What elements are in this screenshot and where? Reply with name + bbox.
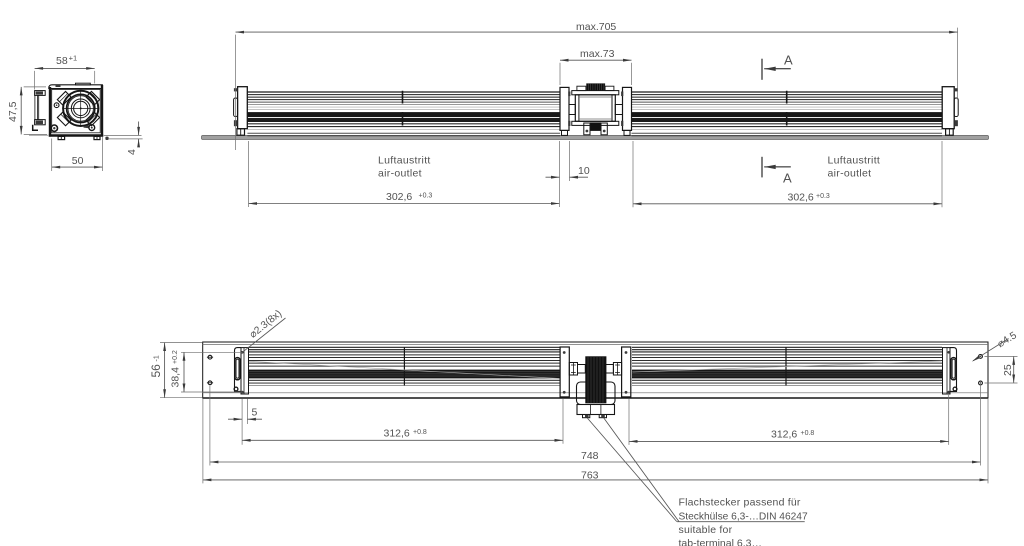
svg-text:312,6: 312,6 <box>771 428 797 440</box>
svg-text:max.705: max.705 <box>576 21 616 33</box>
svg-text:38,4: 38,4 <box>170 367 182 388</box>
svg-text:56: 56 <box>149 364 163 378</box>
svg-text:10: 10 <box>578 165 590 177</box>
svg-text:suitable for: suitable for <box>679 524 733 536</box>
svg-text:Steckhülse 6,3-…DIN 46247: Steckhülse 6,3-…DIN 46247 <box>679 512 808 523</box>
svg-text:50: 50 <box>72 155 84 167</box>
svg-text:58: 58 <box>56 55 68 67</box>
svg-text:Luftaustritt: Luftaustritt <box>828 155 881 167</box>
svg-text:302,6: 302,6 <box>386 191 412 203</box>
svg-text:748: 748 <box>581 450 599 462</box>
svg-text:25: 25 <box>1002 364 1014 376</box>
svg-text:312,6: 312,6 <box>384 427 410 439</box>
svg-text:air-outlet: air-outlet <box>378 168 422 180</box>
svg-text:max.73: max.73 <box>580 48 615 60</box>
svg-text:+0.8: +0.8 <box>413 429 427 436</box>
svg-text:+0.2: +0.2 <box>172 350 179 364</box>
svg-text:5: 5 <box>252 407 258 419</box>
svg-text:47,5: 47,5 <box>7 101 19 122</box>
svg-text:4: 4 <box>126 149 138 155</box>
svg-text:+0.8: +0.8 <box>801 430 815 437</box>
svg-text:A: A <box>784 53 793 68</box>
svg-text:tab-terminal 6,3…: tab-terminal 6,3… <box>679 537 762 546</box>
svg-text:+0.3: +0.3 <box>816 193 830 200</box>
svg-text:302,6: 302,6 <box>788 191 814 203</box>
svg-text:+0.3: +0.3 <box>419 193 433 200</box>
svg-text:air-outlet: air-outlet <box>828 168 872 180</box>
svg-text:A: A <box>783 171 792 186</box>
svg-text:Flachstecker passend für: Flachstecker passend für <box>679 497 801 509</box>
svg-text:+1: +1 <box>69 54 78 63</box>
svg-text:-1: -1 <box>154 355 161 361</box>
svg-text:Luftaustritt: Luftaustritt <box>378 155 431 167</box>
